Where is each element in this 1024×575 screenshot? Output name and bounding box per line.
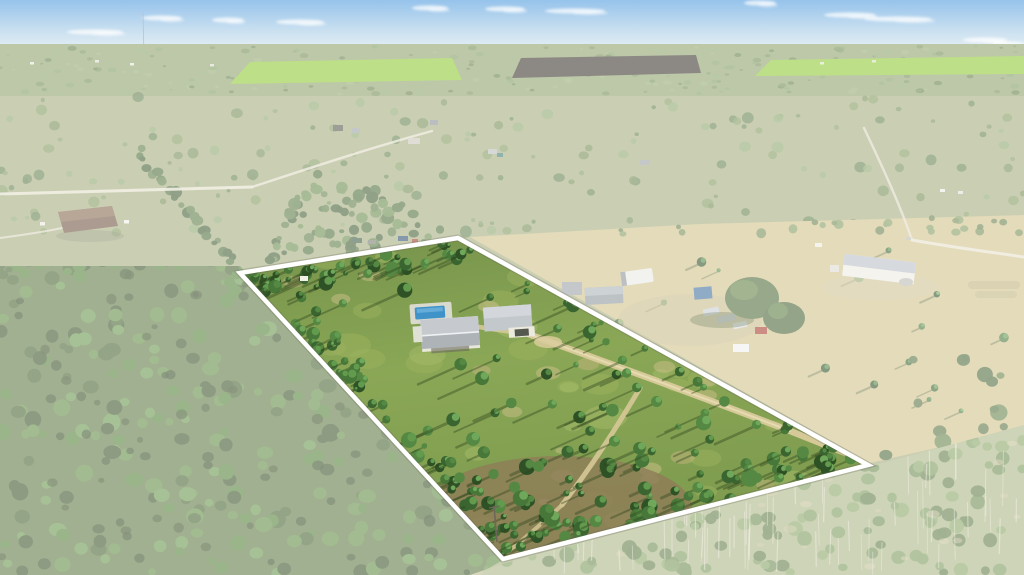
pine-highlight: [423, 262, 426, 265]
pine-highlight: [622, 356, 627, 361]
pine-highlight: [355, 387, 357, 389]
pine-highlight: [473, 487, 477, 491]
pine-highlight: [527, 281, 530, 284]
pine-highlight: [367, 269, 372, 274]
pine-highlight: [489, 523, 495, 529]
pine-highlight: [348, 370, 356, 378]
pine-highlight: [649, 493, 652, 496]
pine-highlight: [324, 277, 332, 285]
pine-highlight: [589, 427, 594, 432]
house-wing: [413, 326, 423, 343]
pine-highlight: [531, 532, 535, 536]
pine-highlight: [615, 370, 620, 375]
pine-highlight: [519, 491, 528, 500]
pine-highlight: [339, 262, 344, 267]
pine-highlight: [416, 450, 424, 458]
pine-highlight: [460, 249, 466, 255]
pine-highlight: [679, 367, 684, 372]
grass-patch: [560, 382, 579, 392]
aerial-photo-canvas: [0, 0, 1024, 575]
pine-highlight: [483, 447, 490, 454]
grass-patch: [353, 303, 382, 319]
pine-highlight: [564, 531, 570, 537]
pine-highlight: [407, 433, 416, 442]
pine-highlight: [704, 409, 709, 414]
pine-highlight: [581, 491, 585, 495]
pine-highlight: [300, 326, 306, 332]
pine-highlight: [452, 413, 460, 421]
pine-highlight: [344, 358, 348, 362]
pine-highlight: [613, 436, 619, 442]
pine-highlight: [493, 470, 499, 476]
pine-highlight: [489, 294, 493, 298]
pine-highlight: [459, 359, 466, 366]
pine-highlight: [545, 505, 553, 513]
pine-highlight: [363, 376, 367, 380]
pine-highlight: [823, 448, 827, 452]
pine-highlight: [312, 328, 320, 336]
pine-highlight: [674, 487, 679, 492]
pine-highlight: [314, 267, 318, 271]
pine-highlight: [513, 482, 519, 488]
pine-highlight: [359, 358, 364, 363]
pine-highlight: [537, 461, 543, 467]
pine-highlight: [802, 447, 809, 454]
pine-highlight: [451, 485, 456, 490]
pine-highlight: [704, 492, 710, 498]
pine-highlight: [566, 446, 573, 453]
pine-highlight: [444, 475, 449, 480]
pine-highlight: [703, 384, 707, 388]
pine-highlight: [697, 377, 702, 382]
pine-highlight: [727, 471, 734, 478]
pine-highlight: [447, 243, 450, 246]
pine-highlight: [593, 322, 596, 325]
pine-highlight: [479, 488, 484, 493]
pine-highlight: [748, 470, 758, 480]
pine-highlight: [299, 292, 303, 296]
pine-highlight: [643, 482, 651, 490]
pine-highlight: [331, 270, 335, 274]
pine-highlight: [503, 514, 506, 517]
pine-highlight: [566, 491, 569, 494]
pine-highlight: [583, 444, 588, 449]
pine-highlight: [651, 448, 655, 452]
pine-highlight: [638, 443, 645, 450]
pine-highlight: [510, 398, 516, 404]
pine-highlight: [611, 405, 618, 412]
pine-highlight: [745, 459, 751, 465]
pine-highlight: [576, 531, 580, 535]
pine-highlight: [557, 325, 562, 330]
pine-highlight: [600, 496, 607, 503]
pine-highlight: [481, 372, 489, 380]
pine-highlight: [355, 261, 360, 266]
pine-highlight: [566, 519, 571, 524]
pine-highlight: [371, 400, 376, 405]
pine-highlight: [588, 326, 595, 333]
garage-door: [515, 329, 529, 337]
pine-highlight: [595, 516, 602, 523]
pine-highlight: [263, 274, 267, 278]
pine-highlight: [403, 283, 411, 291]
pine-highlight: [546, 369, 552, 375]
pine-highlight: [513, 531, 517, 535]
pine-highlight: [342, 371, 348, 377]
pine-highlight: [310, 265, 314, 269]
pine-highlight: [788, 466, 792, 470]
pine-highlight: [636, 383, 641, 388]
pine-highlight: [424, 443, 427, 446]
pine-highlight: [513, 521, 518, 526]
pine-highlight: [656, 397, 662, 403]
pine-highlight: [735, 476, 740, 481]
pine-highlight: [316, 318, 320, 322]
pine-highlight: [709, 435, 714, 440]
sand-patch: [654, 361, 675, 373]
pine-highlight: [626, 369, 631, 374]
pine-highlight: [756, 420, 761, 425]
pine-highlight: [575, 362, 578, 365]
garage-apron: [534, 336, 562, 348]
pine-highlight: [647, 507, 655, 515]
pine-highlight: [404, 258, 411, 265]
pine-highlight: [551, 400, 556, 405]
pine-highlight: [397, 255, 400, 258]
white-trailer: [300, 276, 308, 281]
pine-highlight: [358, 381, 365, 388]
pine-highlight: [469, 497, 477, 505]
pine-highlight: [723, 397, 729, 403]
pine-highlight: [697, 483, 703, 489]
pine-highlight: [342, 300, 346, 304]
pine-highlight: [568, 476, 573, 481]
pine-highlight: [354, 364, 360, 370]
pine-highlight: [526, 288, 529, 291]
aerial-photo: [0, 0, 1024, 575]
pine-highlight: [382, 400, 387, 405]
pine-highlight: [688, 492, 693, 497]
pine-highlight: [694, 449, 698, 453]
pine-highlight: [702, 416, 710, 424]
pine-highlight: [315, 307, 321, 313]
pine-highlight: [605, 339, 609, 343]
pine-highlight: [825, 461, 831, 467]
pine-highlight: [450, 458, 456, 464]
pine-highlight: [337, 339, 341, 343]
pine-highlight: [536, 531, 543, 538]
pine-highlight: [699, 471, 703, 475]
pine-highlight: [430, 459, 434, 463]
pine-highlight: [274, 281, 281, 288]
pine-highlight: [472, 433, 480, 441]
pine-highlight: [386, 416, 390, 420]
pine-highlight: [785, 447, 791, 453]
pine-highlight: [316, 346, 321, 351]
pine-highlight: [334, 331, 340, 337]
pine-highlight: [496, 355, 500, 359]
pine-highlight: [458, 473, 464, 479]
